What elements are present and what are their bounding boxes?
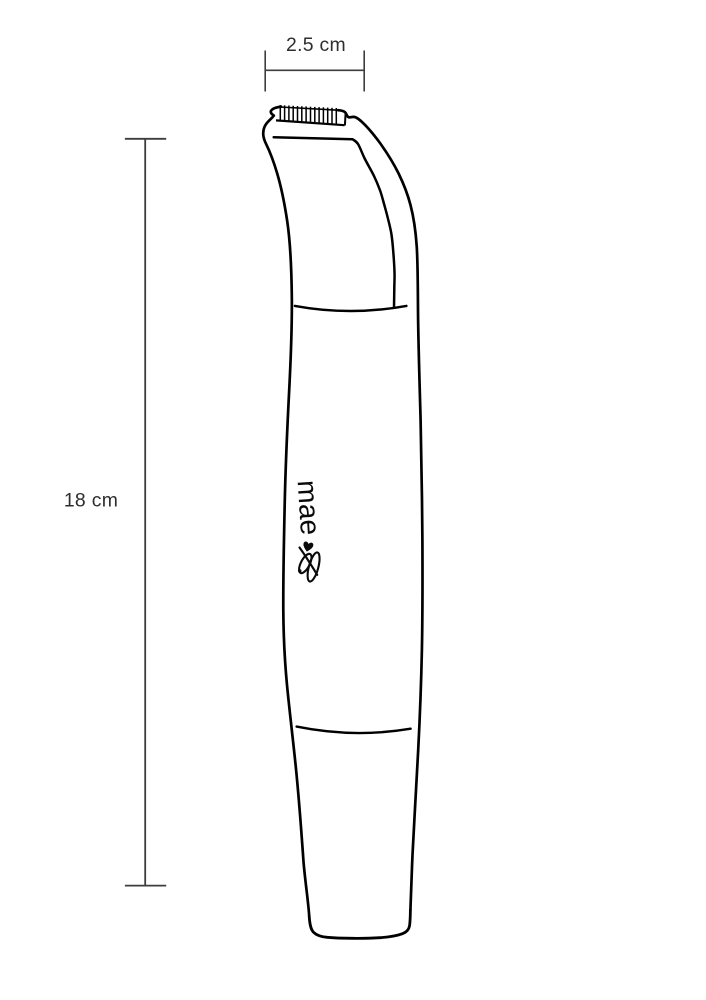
svg-text:18 cm: 18 cm <box>64 490 118 512</box>
svg-text:mae: mae <box>292 479 326 536</box>
svg-text:2.5 cm: 2.5 cm <box>286 34 346 56</box>
